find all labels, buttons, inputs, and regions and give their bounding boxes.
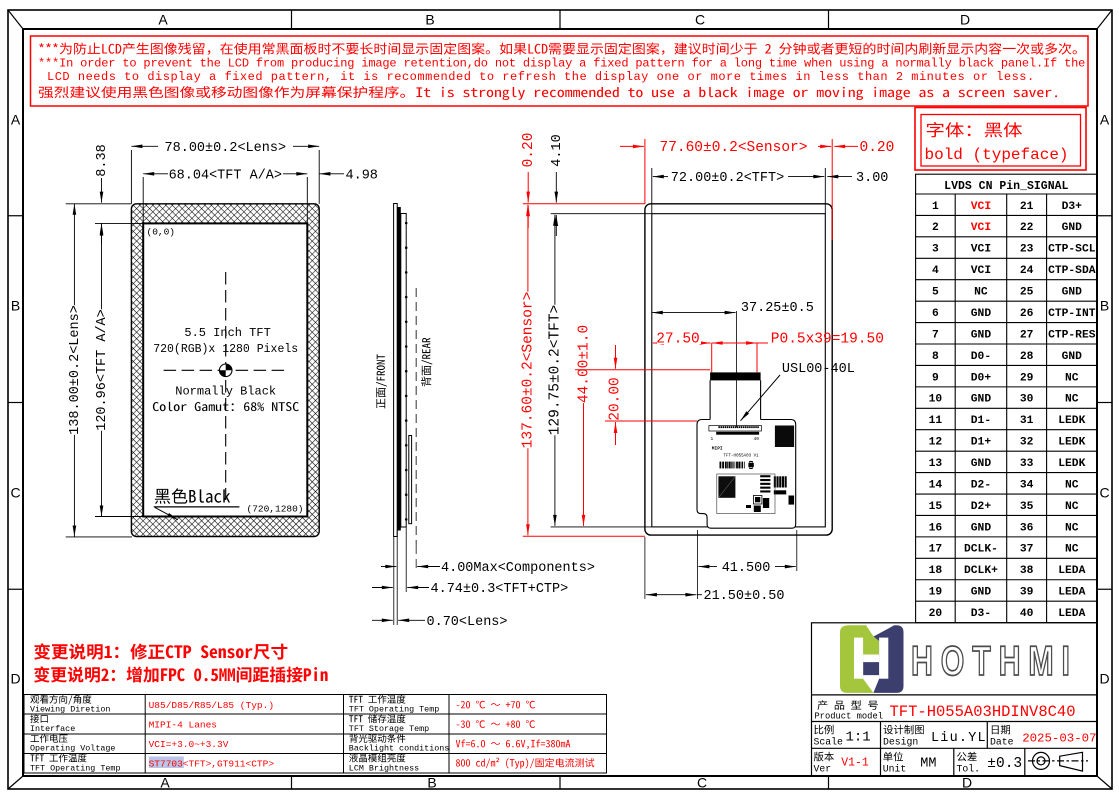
svg-text:Backlight conditions: Backlight conditions: [349, 744, 450, 754]
svg-text:B: B: [1100, 298, 1109, 314]
svg-text:A: A: [11, 112, 21, 128]
svg-text:LEDA: LEDA: [1058, 587, 1085, 599]
svg-text:28: 28: [1020, 351, 1034, 363]
svg-text:31: 31: [1020, 415, 1034, 427]
svg-text:DCLK-: DCLK-: [964, 544, 998, 556]
svg-text:120.96<TFT A/A>: 120.96<TFT A/A>: [95, 309, 110, 431]
svg-text:MM: MM: [920, 757, 936, 772]
svg-text:D0+: D0+: [971, 372, 992, 384]
svg-text:NC: NC: [1065, 479, 1079, 491]
svg-text:37: 37: [1020, 544, 1034, 556]
svg-text:D0-: D0-: [971, 351, 991, 363]
svg-text:68.04<TFT A/A>: 68.04<TFT A/A>: [169, 168, 282, 183]
svg-text:1: 1: [932, 201, 939, 213]
svg-text:TFT-H055A03HDINV8C40: TFT-H055A03HDINV8C40: [890, 703, 1076, 721]
svg-text:USL00-40L: USL00-40L: [782, 362, 855, 377]
svg-text:LCD needs to display a fixed p: LCD needs to display a fixed pattern, it…: [47, 70, 1035, 84]
svg-text:32: 32: [1020, 437, 1034, 449]
svg-text:CTP-INT: CTP-INT: [1048, 308, 1096, 320]
svg-text:25: 25: [1020, 287, 1034, 299]
svg-text:20: 20: [929, 608, 943, 620]
svg-text:39: 39: [1020, 587, 1034, 599]
svg-text:21.50±0.50: 21.50±0.50: [704, 589, 785, 604]
svg-text:4.98: 4.98: [346, 168, 378, 183]
svg-text:24: 24: [1020, 265, 1034, 277]
svg-text:27.50: 27.50: [656, 332, 700, 348]
svg-text:V1-1: V1-1: [841, 757, 869, 770]
svg-text:Design: Design: [883, 737, 918, 748]
svg-text:VCI: VCI: [971, 265, 991, 277]
svg-text:C: C: [10, 485, 20, 501]
svg-text:GND: GND: [971, 329, 992, 341]
svg-text:Date: Date: [990, 737, 1014, 748]
svg-text:D2+: D2+: [971, 501, 992, 513]
svg-text:A: A: [158, 12, 168, 28]
svg-text:GND: GND: [1062, 287, 1083, 299]
svg-text:LEDK: LEDK: [1058, 458, 1085, 470]
svg-text:4: 4: [932, 265, 939, 277]
svg-text:0.20: 0.20: [860, 140, 895, 156]
svg-text:Liu.YL: Liu.YL: [931, 731, 987, 746]
svg-text:20.00: 20.00: [607, 377, 623, 421]
svg-text:26: 26: [1020, 308, 1034, 320]
svg-text:Scale: Scale: [814, 737, 844, 748]
svg-text:138.00±0.2<Lens>: 138.00±0.2<Lens>: [68, 305, 83, 435]
svg-text:NC: NC: [1065, 544, 1079, 556]
svg-text:12: 12: [929, 437, 943, 449]
svg-text:4.00Max<Components>: 4.00Max<Components>: [441, 561, 595, 576]
svg-text:Ver: Ver: [814, 763, 832, 774]
svg-text:19: 19: [929, 587, 943, 599]
svg-text:LEDK: LEDK: [1058, 415, 1085, 427]
svg-text:15: 15: [929, 501, 943, 513]
svg-text:GND: GND: [971, 394, 992, 406]
svg-text:16: 16: [929, 522, 943, 534]
svg-text:bold (typeface): bold (typeface): [925, 146, 1069, 164]
svg-text:GND: GND: [971, 522, 992, 534]
svg-text:4.10: 4.10: [550, 134, 565, 166]
svg-text:78.00±0.2<Lens>: 78.00±0.2<Lens>: [165, 141, 287, 156]
svg-text:14: 14: [929, 479, 943, 491]
svg-text:34: 34: [1020, 479, 1034, 491]
svg-text:VCI: VCI: [971, 201, 991, 213]
svg-text:2025-03-07: 2025-03-07: [1022, 732, 1096, 746]
svg-text:LCM Brightness: LCM Brightness: [349, 763, 419, 773]
svg-text:GND: GND: [971, 587, 992, 599]
svg-text:41.500: 41.500: [722, 561, 771, 576]
svg-text:B: B: [425, 12, 434, 28]
svg-text:TFT-H055A03 V1: TFT-H055A03 V1: [724, 455, 760, 459]
svg-text:22: 22: [1020, 222, 1034, 234]
svg-text:***In order to prevent the LCD: ***In order to prevent the LCD from prod…: [38, 57, 1085, 71]
svg-text:CTP-SCL: CTP-SCL: [1048, 244, 1096, 256]
svg-text:(720,1280): (720,1280): [247, 504, 304, 515]
svg-text:0.70<Lens>: 0.70<Lens>: [427, 615, 508, 630]
svg-text:5: 5: [932, 287, 939, 299]
svg-text:NC: NC: [1065, 501, 1079, 513]
svg-text:B: B: [11, 298, 20, 314]
svg-text:72.00±0.2<TFT>: 72.00±0.2<TFT>: [671, 171, 784, 186]
svg-text:GND: GND: [971, 458, 992, 470]
svg-text:CTP-RES: CTP-RES: [1048, 329, 1096, 341]
svg-text:P0.5x39=19.50: P0.5x39=19.50: [771, 332, 884, 348]
svg-text:ST7703<TFT>,GT911<CTP>: ST7703<TFT>,GT911<CTP>: [149, 758, 275, 769]
svg-text:NC: NC: [1065, 522, 1079, 534]
svg-text:HOTHMI: HOTHMI: [911, 637, 1078, 684]
svg-text:40: 40: [754, 436, 760, 442]
svg-text:A: A: [160, 775, 170, 791]
svg-text:CTP-SDA: CTP-SDA: [1048, 265, 1096, 277]
svg-text:DCLK+: DCLK+: [964, 565, 998, 577]
svg-text:Product model: Product model: [814, 712, 883, 722]
svg-text:27: 27: [1020, 329, 1034, 341]
svg-text:A: A: [1100, 112, 1110, 128]
svg-text:1:1: 1:1: [846, 730, 871, 746]
svg-text:LVDS CN Pin_SIGNAL: LVDS CN Pin_SIGNAL: [944, 180, 1068, 193]
svg-text:21: 21: [1020, 201, 1034, 213]
svg-text:LEDA: LEDA: [1058, 565, 1085, 577]
svg-text:TFT Storage Temp: TFT Storage Temp: [349, 724, 429, 734]
svg-text:Normally Black: Normally Black: [175, 385, 276, 399]
svg-text:VCI=+3.0~+3.3V: VCI=+3.0~+3.3V: [149, 739, 229, 750]
svg-text:17: 17: [929, 544, 943, 556]
svg-text:77.60±0.2<Sensor>: 77.60±0.2<Sensor>: [660, 140, 808, 156]
svg-text:2: 2: [932, 222, 939, 234]
svg-text:D2-: D2-: [971, 479, 991, 491]
svg-text:44.00±1.0: 44.00±1.0: [576, 325, 592, 403]
svg-text:LEDA: LEDA: [1058, 608, 1085, 620]
svg-text:1: 1: [711, 436, 714, 442]
svg-text:D: D: [962, 775, 972, 791]
svg-text:Viewing Diretion: Viewing Diretion: [30, 704, 110, 714]
svg-text:Interface: Interface: [30, 724, 75, 734]
svg-text:129.75±0.2<TFT>: 129.75±0.2<TFT>: [548, 305, 564, 436]
svg-text:Tol.: Tol.: [957, 763, 981, 774]
svg-text:D: D: [960, 12, 970, 28]
svg-text:18: 18: [929, 565, 943, 577]
svg-text:D1+: D1+: [971, 437, 992, 449]
svg-text:5.5 Inch TFT: 5.5 Inch TFT: [184, 326, 270, 340]
svg-text:U85/D85/R85/L85 (Typ.): U85/D85/R85/L85 (Typ.): [149, 700, 274, 711]
svg-text:GND: GND: [971, 308, 992, 320]
svg-text:D3+: D3+: [1062, 201, 1083, 213]
svg-text:GND: GND: [1062, 222, 1083, 234]
svg-text:±0.3: ±0.3: [987, 756, 1022, 772]
svg-text:8.38: 8.38: [95, 144, 110, 176]
svg-text:B: B: [427, 775, 436, 791]
svg-text:C: C: [695, 12, 705, 28]
svg-text:35: 35: [1020, 501, 1034, 513]
svg-text:23: 23: [1020, 244, 1034, 256]
svg-text:Unit: Unit: [883, 763, 907, 774]
svg-text:TFT Operating Temp: TFT Operating Temp: [349, 704, 439, 714]
svg-text:29: 29: [1020, 372, 1034, 384]
svg-text:37.25±0.5: 37.25±0.5: [741, 301, 814, 316]
svg-text:137.60±0.2<Sensor>: 137.60±0.2<Sensor>: [521, 292, 537, 449]
svg-text:30: 30: [1020, 394, 1034, 406]
svg-text:40: 40: [1020, 608, 1034, 620]
svg-text:D: D: [1099, 671, 1109, 687]
svg-text:7: 7: [932, 329, 939, 341]
svg-text:LEDK: LEDK: [1058, 437, 1085, 449]
svg-text:GND: GND: [1062, 351, 1083, 363]
svg-text:11: 11: [929, 415, 943, 427]
svg-text:NC: NC: [1065, 372, 1079, 384]
svg-text:D: D: [10, 671, 20, 687]
svg-text:33: 33: [1020, 458, 1034, 470]
svg-text:0.20: 0.20: [521, 133, 537, 168]
svg-text:10: 10: [929, 394, 943, 406]
svg-text:VCI: VCI: [971, 222, 991, 234]
svg-text:MIPI-4 Lanes: MIPI-4 Lanes: [149, 720, 217, 731]
svg-text:Operating Voltage: Operating Voltage: [30, 744, 115, 754]
svg-text:4.74±0.3<TFT+CTP>: 4.74±0.3<TFT+CTP>: [431, 582, 569, 597]
svg-text:C: C: [697, 775, 707, 791]
svg-text:6: 6: [932, 308, 939, 320]
svg-text:720(RGB)x 1280 Pixels: 720(RGB)x 1280 Pixels: [153, 343, 298, 356]
svg-text:D3-: D3-: [971, 608, 991, 620]
svg-text:36: 36: [1020, 522, 1034, 534]
svg-text:3.00: 3.00: [856, 171, 888, 186]
svg-text:8: 8: [932, 351, 939, 363]
svg-text:38: 38: [1020, 565, 1034, 577]
svg-text:NC: NC: [1065, 394, 1079, 406]
svg-text:3: 3: [932, 244, 939, 256]
svg-text:(0,0): (0,0): [147, 227, 176, 238]
svg-text:13: 13: [929, 458, 943, 470]
svg-text:VCI: VCI: [971, 244, 991, 256]
svg-text:9: 9: [932, 372, 939, 384]
svg-text:NC: NC: [974, 287, 988, 299]
svg-text:D1-: D1-: [971, 415, 991, 427]
svg-text:MIPI: MIPI: [712, 446, 723, 452]
svg-text:C: C: [1099, 485, 1109, 501]
svg-text:TFT Operating Temp: TFT Operating Temp: [30, 763, 120, 773]
